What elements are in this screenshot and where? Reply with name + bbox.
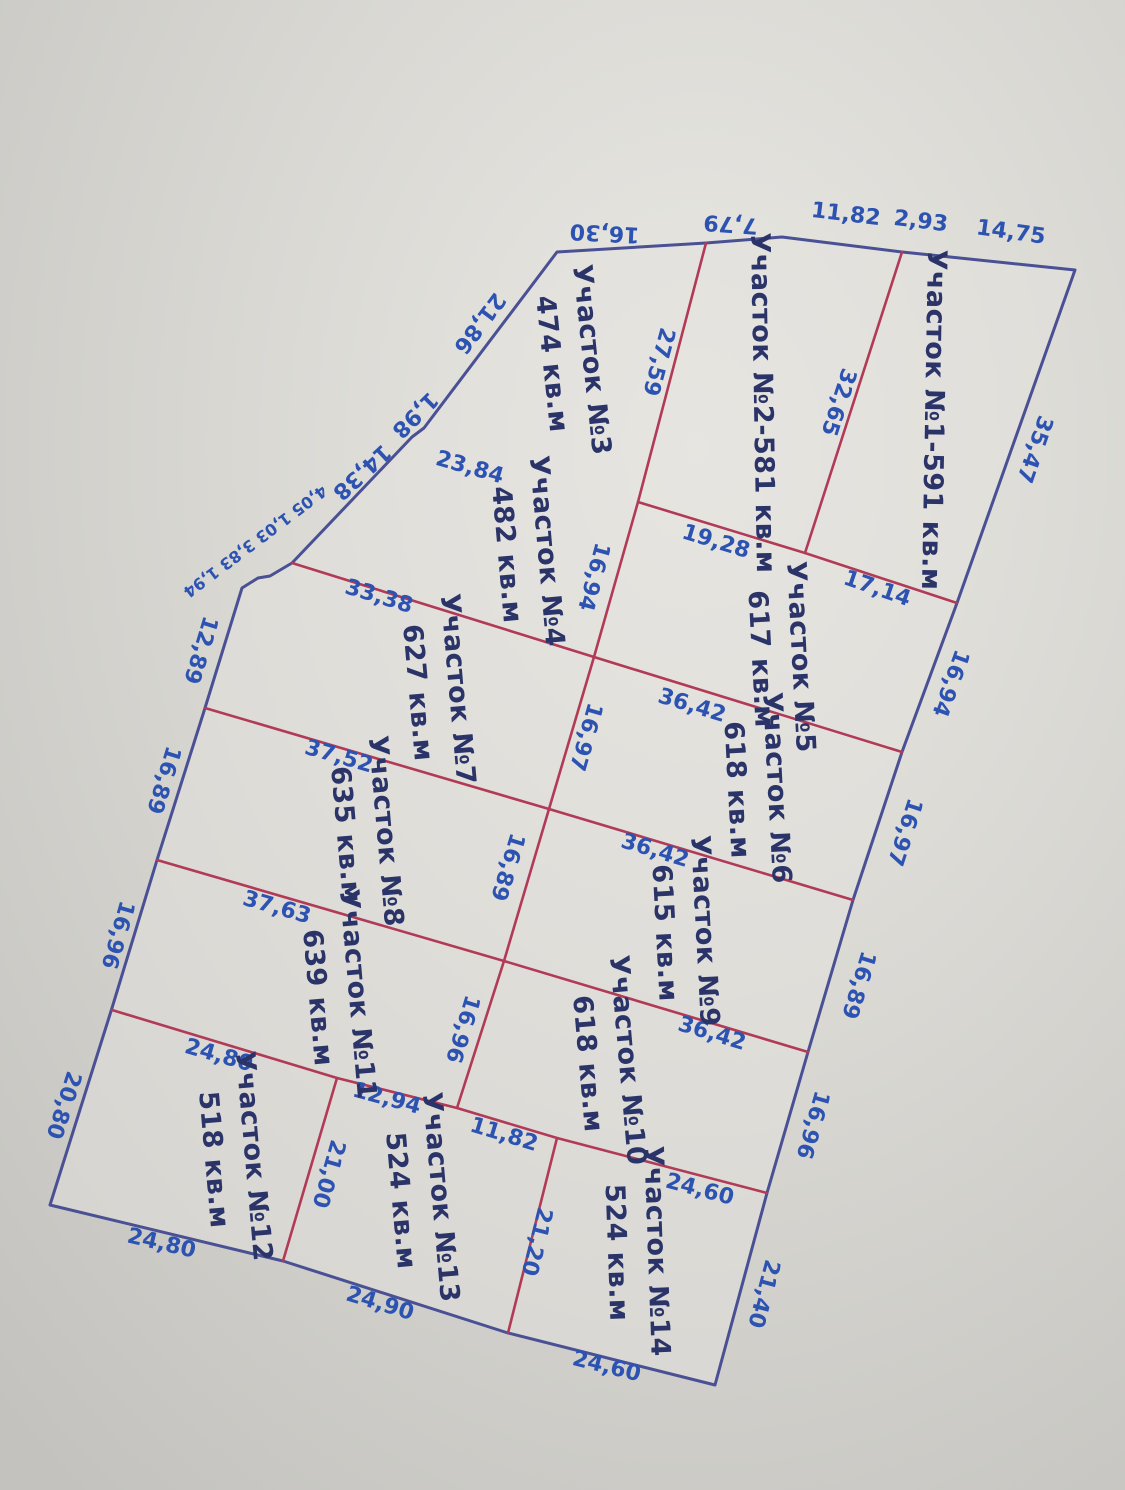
- measurement-label: 16,30: [569, 218, 640, 247]
- parcel-label-1: Участок №1-591 кв.м: [915, 249, 952, 590]
- parcel-label-2: Участок №2-581 кв.м: [744, 232, 781, 573]
- parcel-name: Участок №1-591 кв.м: [915, 249, 952, 590]
- land-plot-plan: 16,307,7911,822,9314,7535,4716,9416,9716…: [0, 0, 1125, 1490]
- photographed-cadastral-plan-page: 16,307,7911,822,9314,7535,4716,9416,9716…: [0, 0, 1125, 1490]
- measurement-value: 16,30: [569, 218, 640, 247]
- parcel-area: 524 кв.м: [599, 1183, 635, 1321]
- parcel-name: Участок №2-581 кв.м: [744, 232, 781, 573]
